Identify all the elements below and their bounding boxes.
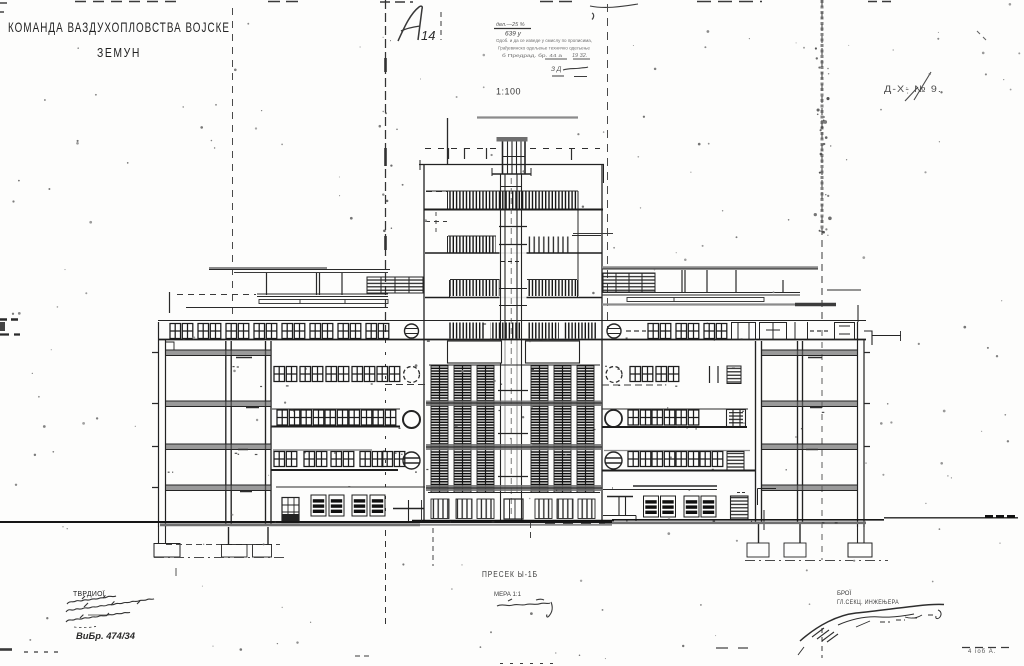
svg-text:Д-Х- № 9.: Д-Х- № 9. [884, 84, 942, 95]
svg-text:Грађевинско одељење техничко о: Грађевинско одељење техничко одељење [498, 46, 590, 51]
svg-text:Одоб. и да се изведе у смислу: Одоб. и да се изведе у смислу по прописи… [496, 38, 592, 43]
svg-text:4 іоб А.: 4 іоб А. [968, 649, 996, 655]
svg-text:дел.—25 %: дел.—25 % [496, 22, 525, 28]
svg-text:ВиБр. 474/34: ВиБр. 474/34 [76, 631, 136, 642]
svg-text:МЕРА 1:1: МЕРА 1:1 [494, 592, 522, 598]
svg-text:З Д: З Д [551, 66, 562, 73]
svg-text:639 у: 639 у [505, 31, 522, 38]
svg-text:19 32.: 19 32. [572, 53, 587, 59]
svg-text:КОМАНДА ВАЗДУХОПЛОВСТВА ВОЈСКЕ: КОМАНДА ВАЗДУХОПЛОВСТВА ВОЈСКЕ [8, 19, 230, 35]
svg-text:ГЛ.СЕКЦ. ИНЖЕЊЕРА: ГЛ.СЕКЦ. ИНЖЕЊЕРА [837, 599, 899, 606]
svg-text:б Предрад. бр. 44 а: б Предрад. бр. 44 а [502, 53, 563, 58]
svg-text:1:100: 1:100 [496, 87, 521, 97]
svg-text:14: 14 [421, 28, 435, 43]
svg-text:БРОЇ: БРОЇ [837, 590, 851, 597]
svg-text:ПРЕСЕК Ы-1Б: ПРЕСЕК Ы-1Б [482, 569, 538, 579]
svg-text:ТВРДИОЇ: ТВРДИОЇ [73, 590, 105, 598]
svg-text:ЗЕМУН: ЗЕМУН [97, 45, 141, 60]
